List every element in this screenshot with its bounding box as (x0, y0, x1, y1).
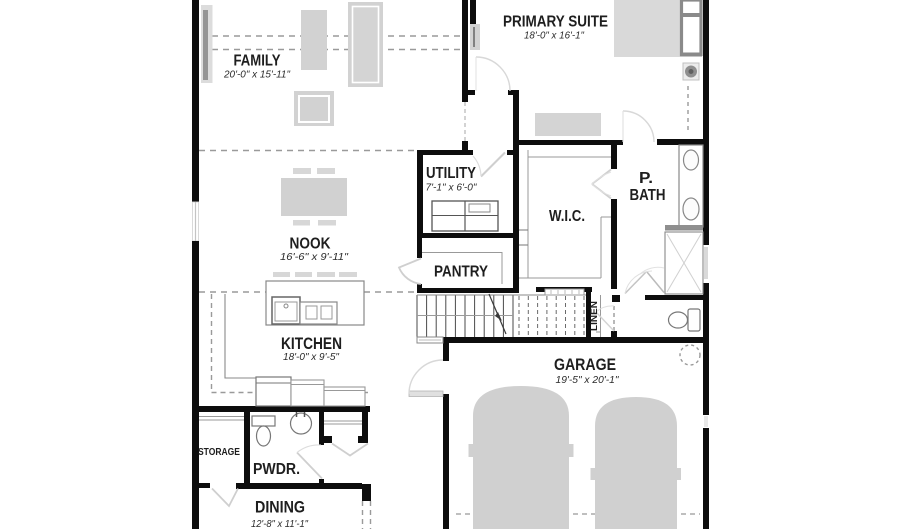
svg-text:FAMILY: FAMILY (234, 53, 281, 70)
svg-text:PWDR.: PWDR. (253, 461, 300, 478)
svg-text:PRIMARY SUITE: PRIMARY SUITE (503, 14, 608, 31)
svg-text:PANTRY: PANTRY (434, 264, 488, 281)
svg-text:STORAGE: STORAGE (198, 446, 240, 458)
svg-text:NOOK: NOOK (290, 236, 331, 253)
svg-text:P.: P. (639, 170, 653, 187)
svg-text:18'-0" x 16'-1": 18'-0" x 16'-1" (524, 30, 585, 42)
svg-text:UTILITY: UTILITY (426, 165, 476, 182)
svg-text:7'-1" x 6'-0": 7'-1" x 6'-0" (426, 182, 478, 194)
svg-text:DINING: DINING (255, 498, 305, 517)
svg-text:LINEN: LINEN (589, 301, 600, 331)
svg-text:W.I.C.: W.I.C. (549, 208, 585, 225)
svg-text:20'-0" x 15'-11": 20'-0" x 15'-11" (223, 69, 291, 81)
svg-text:16'-6" x 9'-11": 16'-6" x 9'-11" (280, 251, 349, 263)
svg-text:18'-0" x 9'-5": 18'-0" x 9'-5" (283, 351, 340, 363)
svg-text:12'-8" x 11'-1": 12'-8" x 11'-1" (251, 518, 309, 529)
svg-text:19'-5" x 20'-1": 19'-5" x 20'-1" (556, 374, 620, 386)
svg-text:GARAGE: GARAGE (554, 355, 616, 374)
svg-text:BATH: BATH (630, 187, 666, 204)
